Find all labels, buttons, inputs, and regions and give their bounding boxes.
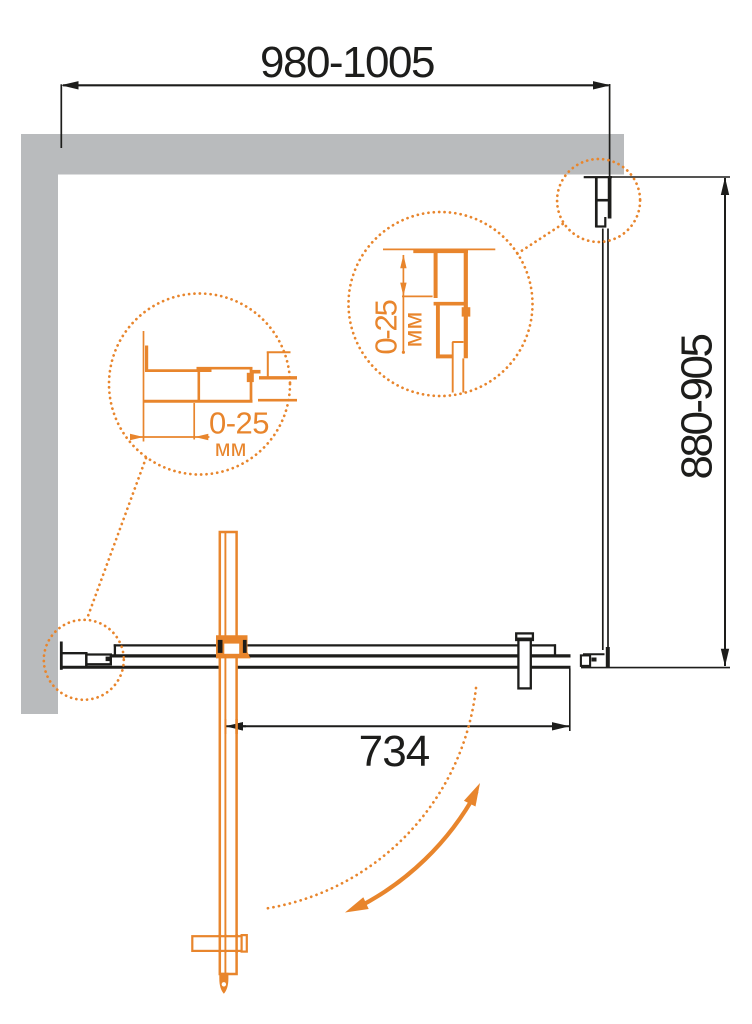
svg-text:734: 734 <box>359 727 430 776</box>
svg-text:880-905: 880-905 <box>673 334 722 479</box>
svg-text:мм: мм <box>398 312 428 348</box>
svg-text:980-1005: 980-1005 <box>260 38 434 87</box>
svg-text:мм: мм <box>215 435 247 461</box>
